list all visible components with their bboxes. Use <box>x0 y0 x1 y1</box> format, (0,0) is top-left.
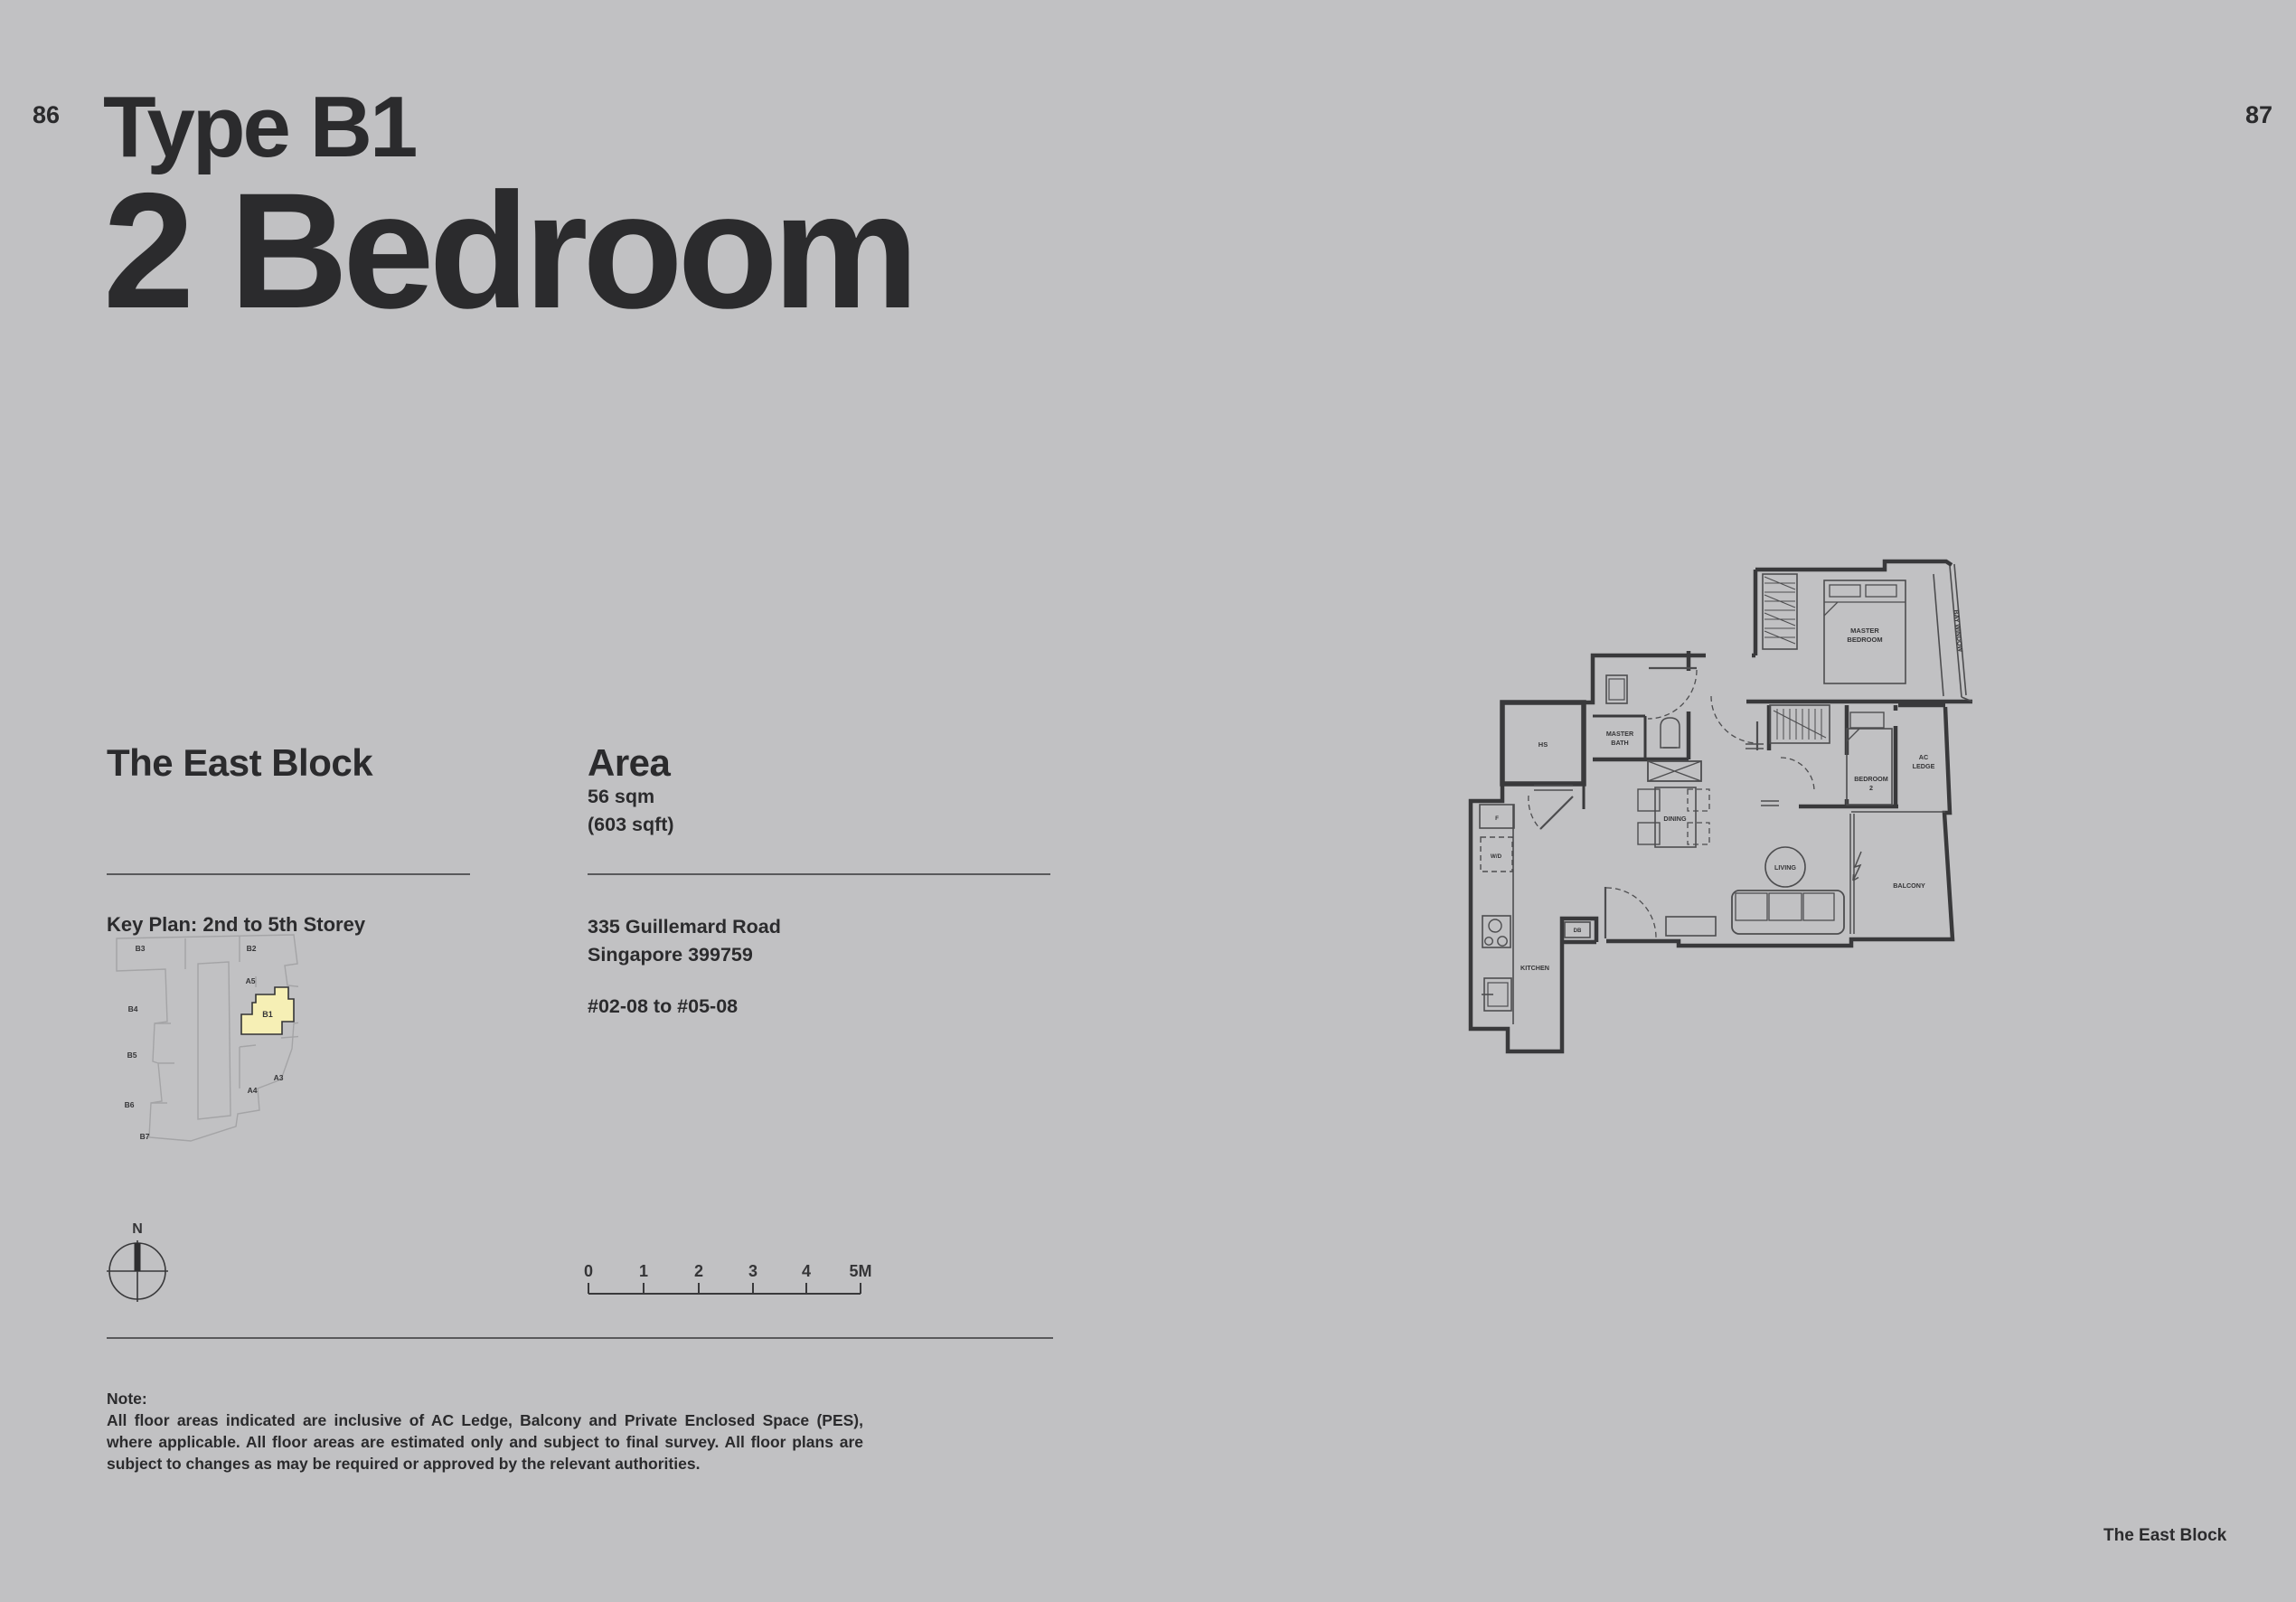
key-plan-unit-label: B5 <box>127 1051 137 1060</box>
area-heading: Area <box>588 741 670 785</box>
sofa-icon <box>1732 891 1844 934</box>
key-plan-unit-label: A3 <box>274 1073 284 1082</box>
kitchen-label: KITCHEN <box>1520 964 1549 972</box>
divider-east-block <box>107 873 470 875</box>
scale-tick-label: 1 <box>639 1262 648 1280</box>
living-label: LIVING <box>1774 863 1796 872</box>
key-plan-unit-label: A5 <box>246 976 256 985</box>
door-swing-arcs <box>1529 670 1814 938</box>
toilet-icon <box>1661 718 1680 748</box>
dining-label: DINING <box>1663 815 1687 823</box>
floor-plan: MASTER BEDROOM BAY WINDOW MASTER BATH HS… <box>1446 533 2043 1094</box>
bay-window-label: BAY WINDOW <box>1953 609 1963 653</box>
key-plan-unit-label: B3 <box>136 944 146 953</box>
scale-bar: 0 1 2 3 4 5M <box>583 1262 881 1302</box>
balcony-edge-lines <box>1850 812 1945 934</box>
area-sqm: 56 sqm <box>588 783 654 811</box>
kitchen-sink-icon <box>1482 978 1511 1011</box>
scale-bar-ruler <box>588 1283 861 1294</box>
divider-bottom <box>107 1337 1053 1339</box>
key-plan-diagram: B3 B2 B4 A5 B1 B5 A3 A4 B6 B7 <box>104 929 298 1155</box>
title-block: Type B1 2 Bedroom <box>103 83 914 326</box>
threshold-lines <box>1534 744 1779 806</box>
key-plan-unit-label: B7 <box>140 1132 150 1141</box>
north-compass: N <box>105 1215 170 1309</box>
door-leaves <box>1540 668 1757 938</box>
washer-dryer-label: W/D <box>1491 853 1502 860</box>
scale-tick-label: 5M <box>849 1262 871 1280</box>
distribution-board-label: DB <box>1574 928 1582 934</box>
page-number-right: 87 <box>2245 101 2272 129</box>
bedroom2-label: 2 <box>1869 784 1873 792</box>
compass-north-needle <box>135 1243 141 1271</box>
key-plan-unit-label-b1: B1 <box>262 1010 273 1019</box>
compass-north-label: N <box>132 1221 143 1237</box>
master-bedroom-label: BEDROOM <box>1847 636 1882 644</box>
note-block: Note: All floor areas indicated are incl… <box>107 1389 863 1475</box>
brochure-page: 86 87 Type B1 2 Bedroom The East Block K… <box>0 0 2296 1602</box>
key-plan-unit-label: B6 <box>125 1100 135 1109</box>
area-sqft: (603 sqft) <box>588 811 674 839</box>
footer-block-label: The East Block <box>2103 1526 2226 1546</box>
scale-tick-label: 3 <box>748 1262 757 1280</box>
balcony-label: BALCONY <box>1893 881 1925 890</box>
ac-ledge-label: LEDGE <box>1913 762 1935 770</box>
key-plan-unit-label: A4 <box>248 1086 258 1095</box>
key-plan-courtyard <box>198 962 231 1119</box>
bathroom-sink-icon <box>1606 675 1627 703</box>
unit-range: #02-08 to #05-08 <box>588 993 738 1021</box>
page-number-left: 86 <box>33 101 60 129</box>
shoe-cabinet-icon <box>1648 761 1701 781</box>
divider-area <box>588 873 1050 875</box>
master-wardrobe-icon <box>1763 574 1797 649</box>
bedroom-count-title: 2 Bedroom <box>103 175 914 326</box>
ac-ledge-label: AC <box>1919 753 1928 761</box>
address-line-1: 335 Guillemard Road <box>588 913 781 941</box>
key-plan-unit-label: B2 <box>247 944 257 953</box>
key-plan-site-outline <box>117 935 298 1141</box>
scale-tick-label: 0 <box>584 1262 593 1280</box>
floor-plan-walls <box>1471 561 1972 1051</box>
bedroom2-wardrobe-icon <box>1770 705 1830 743</box>
bedroom2-label: BEDROOM <box>1854 775 1888 783</box>
note-body: All floor areas indicated are inclusive … <box>107 1410 863 1475</box>
note-heading: Note: <box>107 1389 863 1410</box>
bay-window-lines <box>1934 564 1972 702</box>
key-plan-unit-label: B4 <box>128 1004 138 1013</box>
fridge-label: F <box>1495 815 1499 822</box>
master-bath-label: BATH <box>1611 739 1628 747</box>
east-block-heading: The East Block <box>107 741 372 785</box>
tv-console-icon <box>1666 917 1716 936</box>
address-line-2: Singapore 399759 <box>588 941 753 969</box>
scale-tick-label: 2 <box>694 1262 703 1280</box>
master-bedroom-label: MASTER <box>1850 627 1879 635</box>
stove-icon <box>1482 916 1510 947</box>
scale-tick-label: 4 <box>802 1262 811 1280</box>
master-bath-label: MASTER <box>1606 730 1634 738</box>
household-shelter-label: HS <box>1539 740 1548 749</box>
